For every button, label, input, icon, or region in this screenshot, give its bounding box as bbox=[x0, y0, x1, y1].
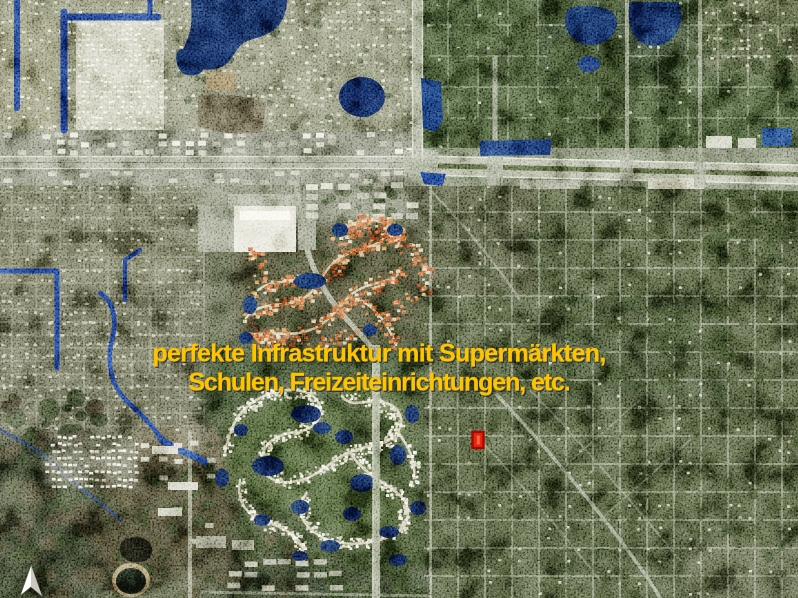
svg-text:perfekte Infrastruktur mit Sup: perfekte Infrastruktur mit Supermärkten, bbox=[152, 340, 605, 368]
svg-text:Schulen, Freizeiteinrichtungen: Schulen, Freizeiteinrichtungen, etc. bbox=[188, 369, 569, 397]
